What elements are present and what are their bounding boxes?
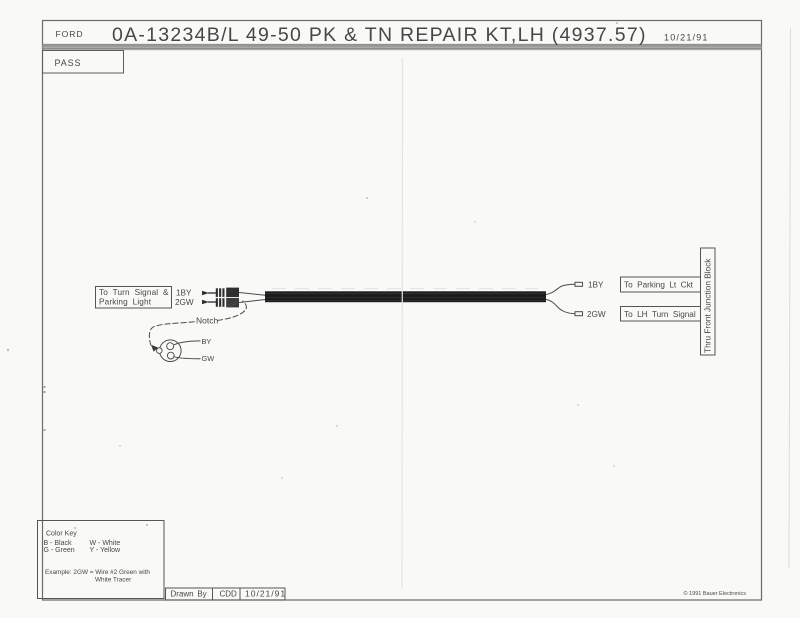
svg-text:2GW: 2GW bbox=[175, 298, 194, 307]
svg-text:GW: GW bbox=[202, 354, 215, 363]
svg-text:B - Black: B - Black bbox=[44, 540, 73, 547]
svg-text:White Tracer: White Tracer bbox=[95, 576, 132, 583]
svg-text:PASS: PASS bbox=[55, 58, 82, 68]
svg-text:To LH Turn Signal: To LH Turn Signal bbox=[624, 310, 696, 319]
svg-text:CDD: CDD bbox=[220, 590, 238, 599]
svg-text:W - White: W - White bbox=[90, 540, 121, 547]
svg-text:FORD: FORD bbox=[56, 29, 84, 39]
svg-text:Y - Yellow: Y - Yellow bbox=[90, 547, 122, 554]
svg-text:2GW: 2GW bbox=[587, 310, 606, 319]
svg-text:Notch: Notch bbox=[196, 316, 218, 326]
svg-text:Thru Front Junction Block: Thru Front Junction Block bbox=[703, 258, 713, 353]
svg-text:To Parking Lt Ckt: To Parking Lt Ckt bbox=[624, 281, 694, 290]
svg-text:© 1991 Bauer Electronics: © 1991 Bauer Electronics bbox=[684, 590, 747, 597]
svg-text:Example: 2GW = Wire #2 Green w: Example: 2GW = Wire #2 Green with bbox=[45, 569, 150, 576]
svg-text:0A-13234B/L 49-50 PK & TN REP: 0A-13234B/L 49-50 PK & TN REPAIR KT,LH (… bbox=[112, 24, 647, 46]
svg-text:1BY: 1BY bbox=[176, 289, 192, 298]
svg-text:10/21/91: 10/21/91 bbox=[664, 33, 709, 43]
svg-text:To Turn Signal &: To Turn Signal & bbox=[99, 288, 169, 297]
svg-text:Drawn By: Drawn By bbox=[171, 590, 207, 599]
svg-text:G - Green: G - Green bbox=[44, 547, 75, 554]
svg-text:BY: BY bbox=[202, 337, 212, 346]
svg-text:Parking Light: Parking Light bbox=[99, 298, 152, 307]
svg-text:Color Key: Color Key bbox=[46, 531, 77, 538]
svg-text:1BY: 1BY bbox=[588, 281, 604, 290]
svg-text:10/21/91: 10/21/91 bbox=[245, 589, 286, 599]
